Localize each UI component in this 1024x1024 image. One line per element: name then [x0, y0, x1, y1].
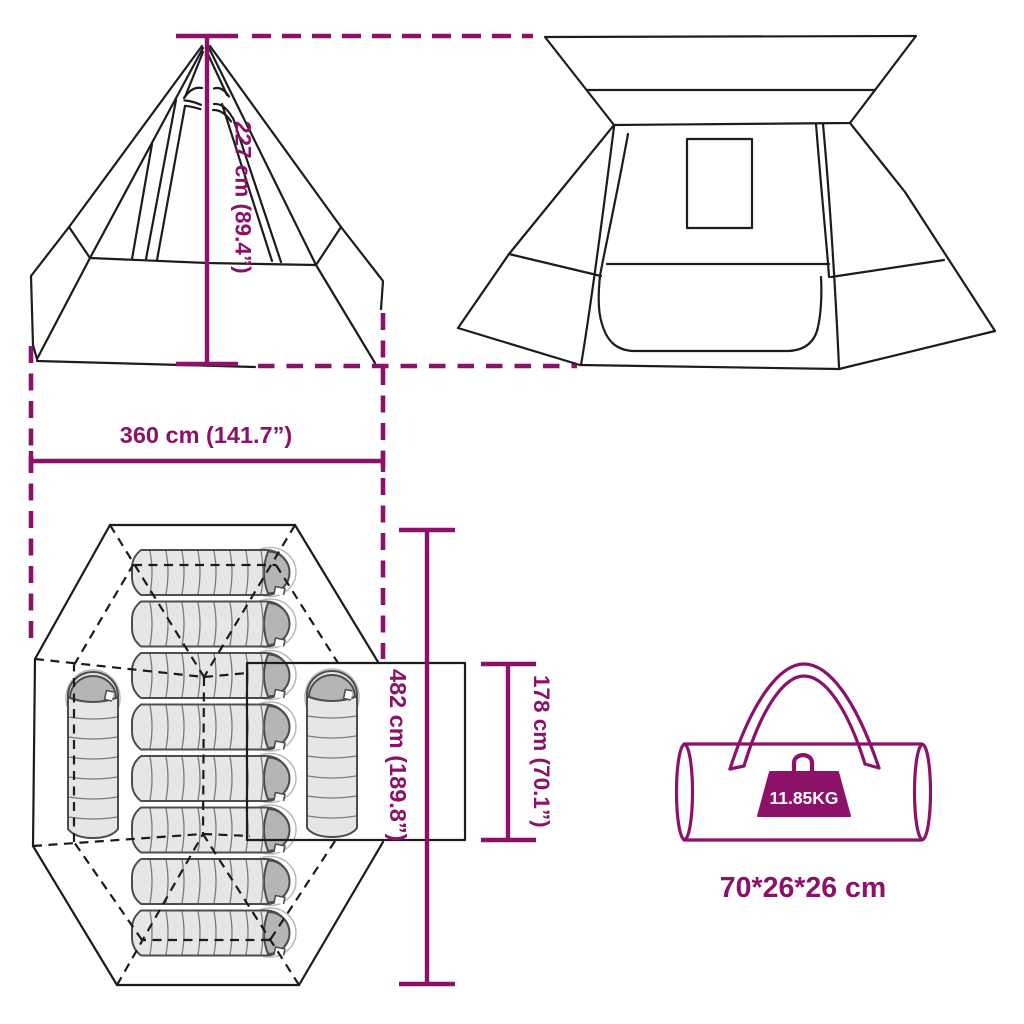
svg-text:11.85KG: 11.85KG — [769, 788, 838, 808]
svg-text:70*26*26 cm: 70*26*26 cm — [720, 872, 886, 904]
svg-text:360 cm (141.7”): 360 cm (141.7”) — [120, 422, 292, 448]
svg-text:227 cm (89.4”): 227 cm (89.4”) — [231, 121, 256, 274]
svg-text:178 cm (70.1”): 178 cm (70.1”) — [529, 675, 554, 828]
svg-text:482 cm (189.8”): 482 cm (189.8”) — [385, 669, 411, 841]
